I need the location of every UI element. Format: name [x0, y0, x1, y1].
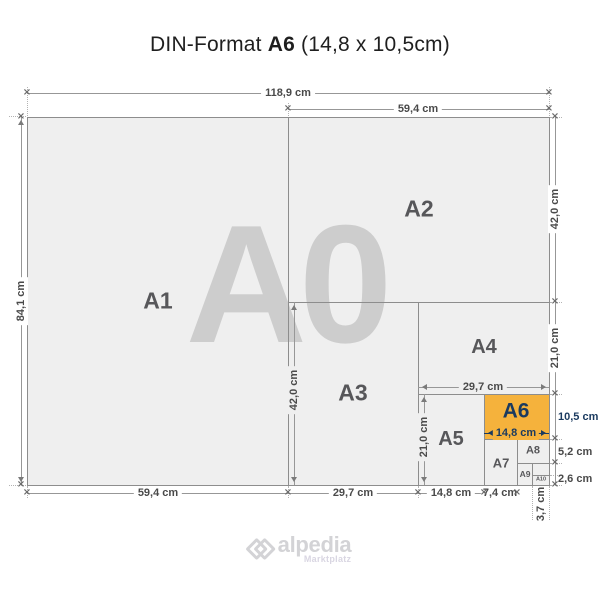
alpedia-logo: alpedia Marktplatz [249, 534, 352, 564]
label-a6: A6 [503, 401, 530, 422]
dim-tick [17, 112, 25, 122]
arrow-down-icon [291, 477, 297, 485]
dim-tick [551, 389, 559, 399]
label-a8: A8 [526, 446, 540, 457]
dim-width-a0: 118,9 cm [261, 86, 315, 100]
boundary-a9-right [532, 463, 533, 485]
arrow-right-icon [541, 384, 549, 390]
dim-tick [414, 488, 422, 498]
dim-width-a10: 3,7 cm [534, 485, 548, 523]
dim-tick [23, 88, 31, 98]
boundary-a7-right [517, 439, 518, 485]
dim-height-a2: 42,0 cm [548, 185, 562, 233]
dim-width-a1-bottom: 59,4 cm [134, 486, 182, 500]
title-format: A6 [268, 33, 295, 56]
arrow-left-icon [485, 430, 493, 436]
dim-width-a5-bottom: 14,8 cm [427, 486, 475, 500]
dim-height-a0: 84,1 cm [14, 277, 28, 325]
arrow-up-icon [291, 302, 297, 310]
dim-tick [551, 297, 559, 307]
dim-height-a3-inner: 42,0 cm [287, 366, 301, 414]
label-a1: A1 [143, 290, 172, 313]
label-a9: A9 [520, 470, 531, 479]
dim-tick [284, 104, 292, 114]
dim-width-a3-bottom: 29,7 cm [329, 486, 377, 500]
dim-width-a1-top: 59,4 cm [394, 102, 442, 116]
dim-width-a4-inner: 29,7 cm [459, 380, 507, 394]
title-size: (14,8 x 10,5cm) [295, 33, 450, 56]
dim-width-a6-inner: 14,8 cm [493, 426, 539, 440]
label-a10: A10 [536, 477, 546, 483]
logo-brand: alpedia [278, 534, 352, 556]
dim-height-a10: 2,6 cm [558, 472, 592, 486]
dim-tick [480, 488, 488, 498]
arrow-right-icon [541, 430, 549, 436]
dim-tick [513, 488, 521, 498]
arrow-left-icon [419, 384, 427, 390]
leader-line [549, 486, 550, 520]
dim-height-a6: 10,5 cm [558, 410, 598, 424]
arrow-up-icon [421, 394, 427, 402]
dim-height-a4: 21,0 cm [548, 324, 562, 372]
leader-line [532, 486, 533, 520]
logo-text: alpedia Marktplatz [278, 534, 352, 564]
dim-tick [284, 488, 292, 498]
dim-tick [551, 434, 559, 444]
dim-tick [551, 458, 559, 468]
dim-tick [545, 88, 553, 98]
boundary-a1-right [288, 117, 289, 485]
boundary-a8-bottom [517, 463, 549, 464]
arrow-down-icon [421, 477, 427, 485]
label-a3: A3 [338, 382, 367, 405]
label-a4: A4 [471, 337, 497, 357]
dim-height-a8: 5,2 cm [558, 445, 592, 459]
dim-height-a5-inner: 21,0 cm [417, 413, 431, 461]
title-prefix: DIN-Format [150, 33, 268, 56]
dim-tick [551, 480, 559, 490]
label-a2: A2 [404, 198, 433, 221]
a0-watermark: A0 [186, 200, 385, 368]
din-format-infographic: DIN-Format A6 (14,8 x 10,5cm) A0 A1 A2 A… [0, 0, 600, 600]
dim-tick [551, 112, 559, 122]
page-title: DIN-Format A6 (14,8 x 10,5cm) [0, 33, 600, 57]
dim-tick [23, 488, 31, 498]
label-a5: A5 [438, 429, 464, 449]
alpedia-knot-icon [249, 541, 273, 557]
label-a7: A7 [493, 457, 510, 470]
